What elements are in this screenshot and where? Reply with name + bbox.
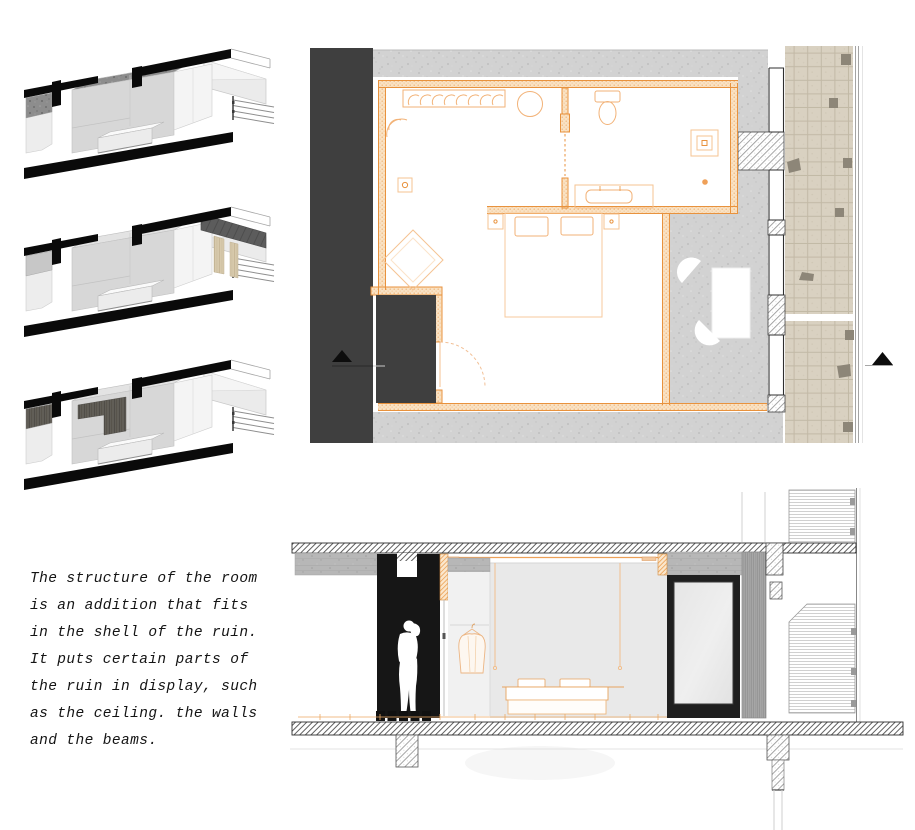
window — [667, 575, 740, 718]
axon-drawing — [8, 190, 283, 340]
plan-brick-paving — [785, 46, 853, 443]
beige-wall-strip — [230, 242, 238, 278]
round-table — [518, 92, 543, 117]
terrace-table — [712, 268, 750, 338]
neighbor-roof-upper — [789, 490, 855, 550]
building-section-drawing — [290, 478, 910, 830]
lounge-chair — [383, 230, 443, 290]
axon-drawing — [8, 343, 283, 493]
nightstand — [488, 214, 503, 229]
axon-section-2 — [8, 190, 283, 340]
axon-drawing — [8, 32, 283, 182]
section-marker-right — [865, 352, 893, 366]
floor-drain — [702, 179, 708, 185]
bottom-slab — [292, 722, 903, 735]
plan-dark-band — [310, 48, 373, 443]
toilet-tank — [595, 91, 620, 102]
shower-outer — [691, 130, 718, 156]
plan-concrete-top — [373, 50, 768, 77]
floor-plan-figure — [305, 40, 905, 450]
concrete-pier — [742, 552, 766, 718]
concrete-beam-left — [295, 553, 377, 575]
nightstand — [604, 214, 619, 229]
entry-floor-tiles — [376, 711, 431, 721]
wardrobe-rail — [403, 90, 505, 107]
floor-outlet — [398, 178, 412, 192]
footing-left — [396, 735, 418, 767]
building-section-figure — [290, 478, 910, 830]
axon-section-1 — [8, 32, 283, 182]
pillow — [561, 217, 593, 235]
caption-text: The structure of the room is an addition… — [30, 566, 292, 755]
bed-plan — [505, 213, 602, 317]
neighbor-roof-lower — [789, 604, 856, 713]
signal-arcs-icon — [387, 119, 407, 137]
plan-concrete-bottom — [373, 412, 783, 443]
beige-wall-strip — [214, 236, 224, 274]
door-swing-arc — [440, 342, 485, 387]
orange-column-right — [658, 554, 667, 575]
hanger-icons — [408, 95, 503, 105]
footing-right — [767, 735, 789, 830]
ground-smudge — [465, 746, 615, 780]
floor-plan-drawing — [305, 40, 905, 450]
presentation-sheet: The structure of the room is an addition… — [0, 0, 915, 830]
plan-closet-block — [376, 295, 436, 403]
sink-counter — [575, 185, 653, 208]
orange-column-left — [440, 554, 448, 600]
axon-section-3 — [8, 343, 283, 493]
toilet-bowl — [599, 102, 616, 125]
pillow — [515, 217, 548, 236]
